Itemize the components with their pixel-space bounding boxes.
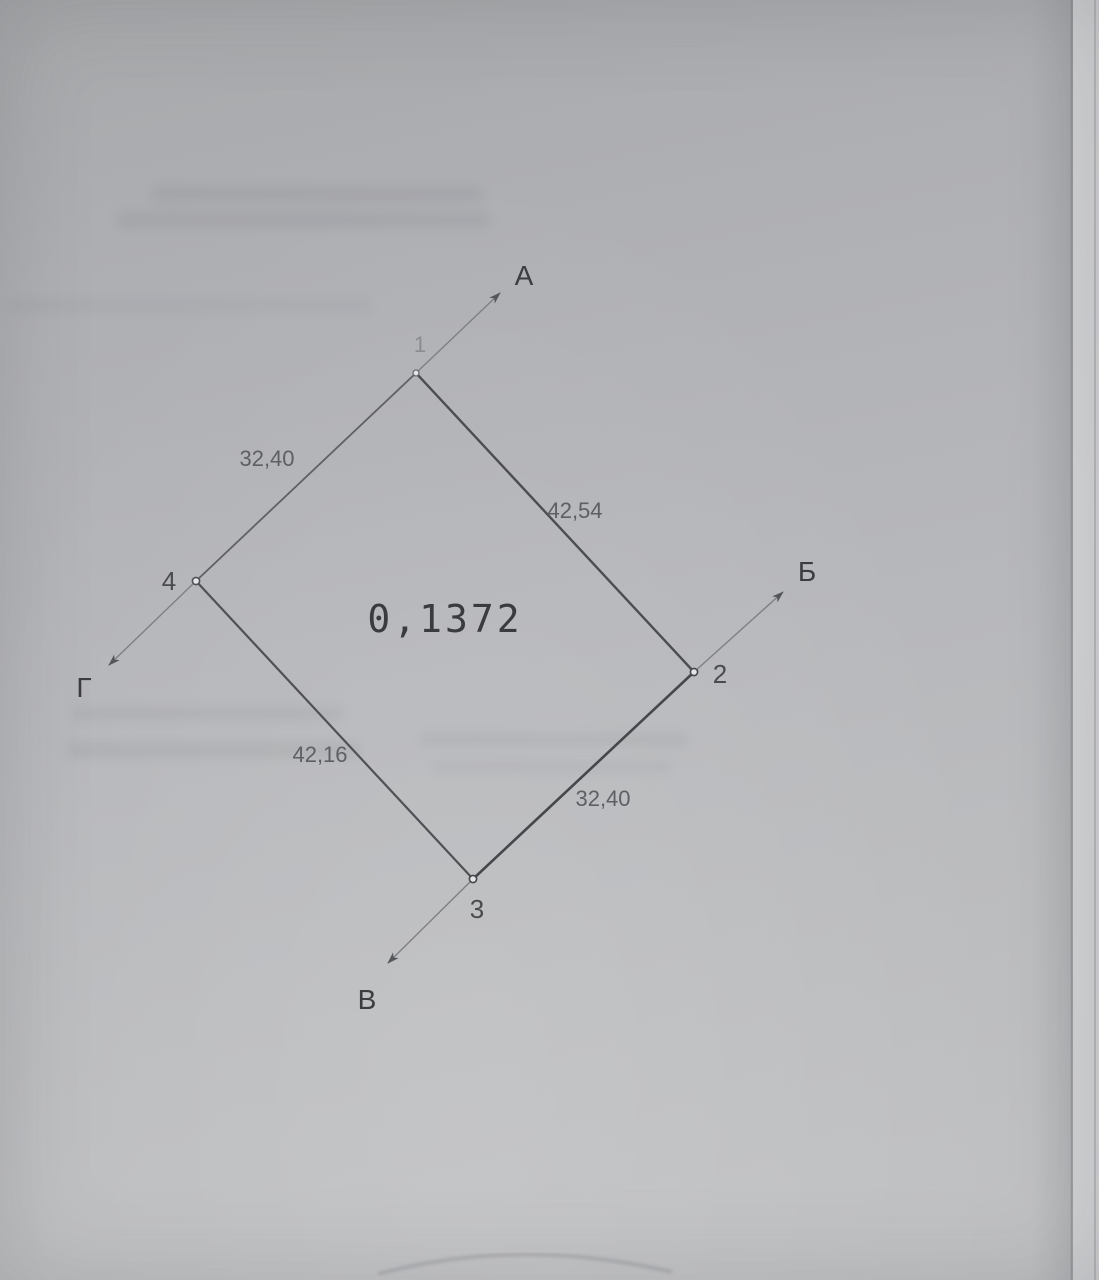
vertex-number-2: 2 xyxy=(713,659,727,689)
ray-direction-b xyxy=(694,592,783,672)
vertex-number-3: 3 xyxy=(470,894,484,924)
vertex-number-1: 1 xyxy=(414,332,426,357)
land-plot-diagram: 1 2 3 4 А Б В Г 32,40 42,54 42,16 32,40 … xyxy=(0,0,1099,1280)
bottom-shadow-arc xyxy=(378,1254,672,1274)
direction-label-v: В xyxy=(358,984,377,1015)
ray-direction-a xyxy=(416,293,500,373)
direction-label-a: А xyxy=(515,260,534,291)
boundary-side-2-3 xyxy=(473,672,694,879)
direction-label-g: Г xyxy=(76,672,91,703)
area-value: 0,1372 xyxy=(367,597,522,641)
page-edge-line xyxy=(1094,0,1096,1280)
side-length-4-1: 32,40 xyxy=(239,446,294,471)
vertex-point-2 xyxy=(690,668,697,675)
side-length-1-2: 42,54 xyxy=(547,498,602,523)
side-length-4-3: 42,16 xyxy=(292,742,347,767)
vertex-point-3 xyxy=(469,875,476,882)
vertex-number-4: 4 xyxy=(162,566,176,596)
side-length-3-2: 32,40 xyxy=(575,786,630,811)
boundary-side-4-1 xyxy=(196,373,416,581)
vertex-point-4 xyxy=(192,577,199,584)
vertex-point-1 xyxy=(413,370,419,376)
ray-direction-g xyxy=(109,581,196,665)
page-fold-shade xyxy=(1030,0,1072,1280)
scanned-page: 1 2 3 4 А Б В Г 32,40 42,54 42,16 32,40 … xyxy=(0,0,1099,1280)
ray-direction-v xyxy=(388,879,473,963)
direction-label-b: Б xyxy=(798,556,816,587)
